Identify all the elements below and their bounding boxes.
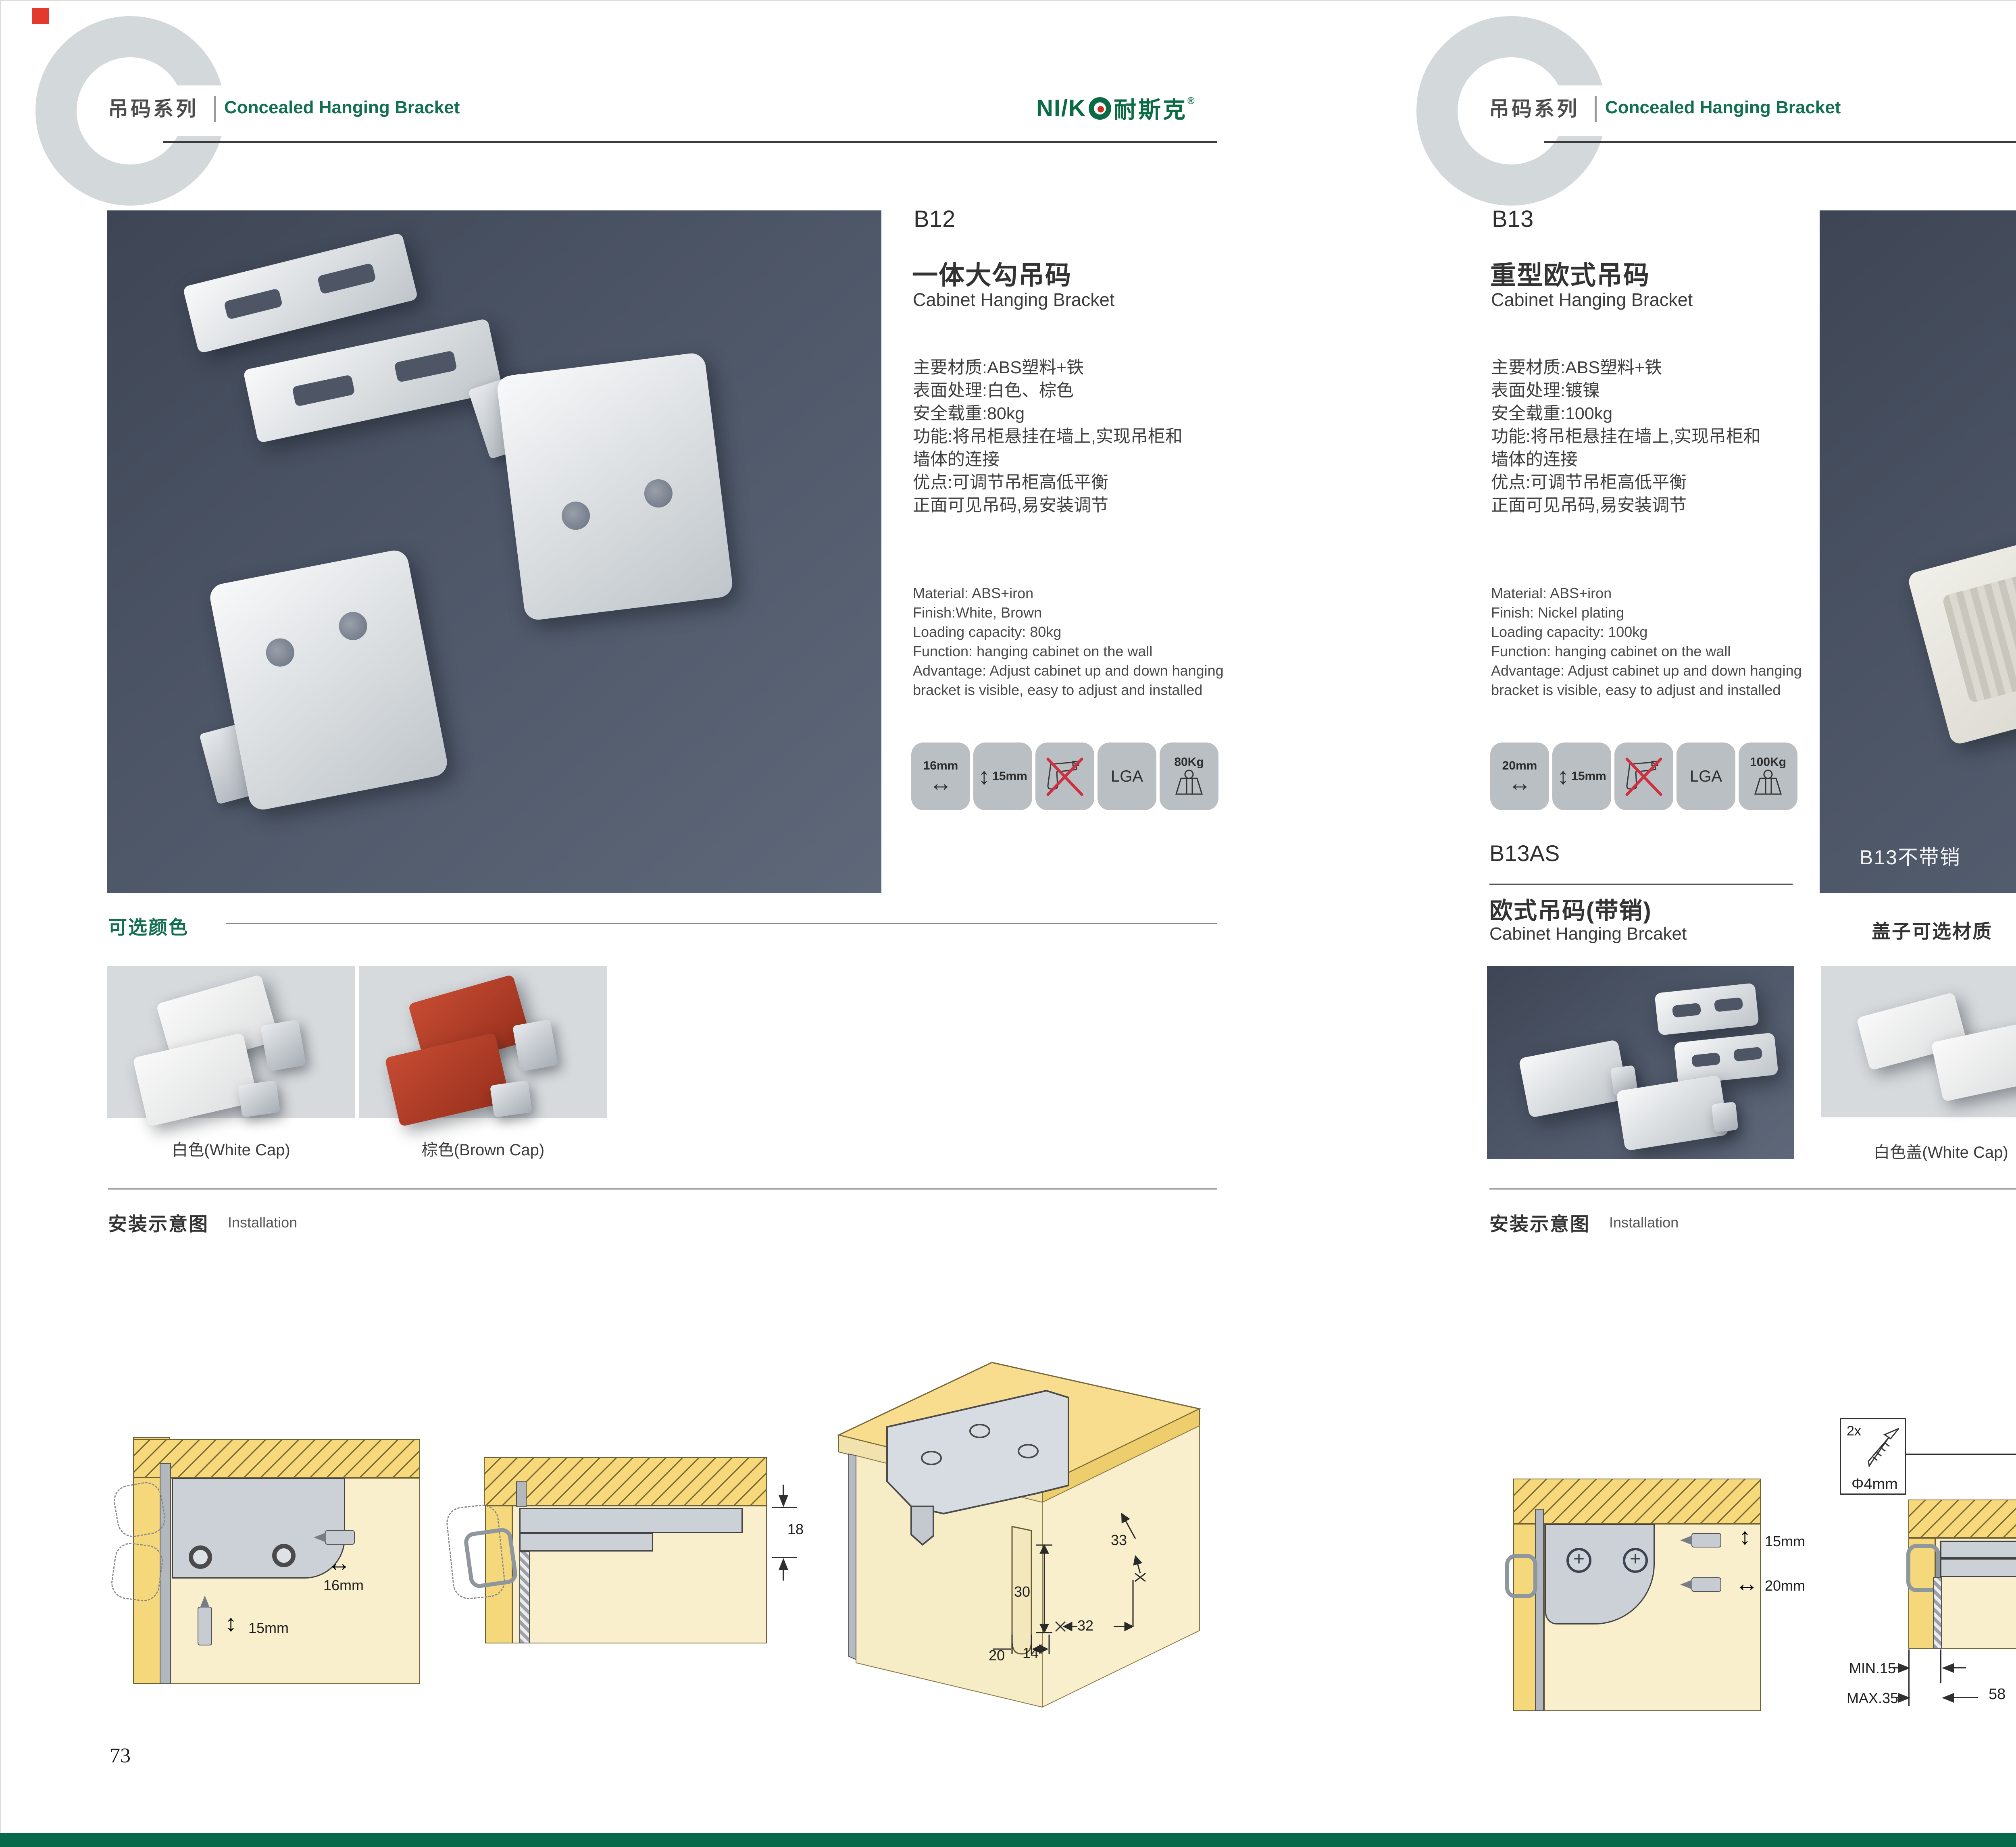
brand-logo: NI/K耐斯克® [1036, 92, 1195, 125]
arrow-right-icon [1898, 1663, 1910, 1673]
product-specs-cn: 主要材质:ABS塑料+铁 表面处理:白色、棕色 安全载重:80kg 功能:将吊柜… [913, 356, 1183, 517]
spec-line: 正面可见吊码,易安装调节 [913, 494, 1183, 517]
rail-slot [224, 288, 283, 320]
load-icon: 80Kg [1160, 743, 1218, 810]
rail-slot [1672, 1003, 1702, 1018]
screw-bit [198, 1607, 212, 1645]
dim-line [1954, 1697, 1978, 1698]
catalog-spread: 吊码系列 Concealed Hanging Bracket NI/K耐斯克® … [0, 0, 2016, 1847]
product-name-cn: 一体大勾吊码 [912, 255, 1072, 292]
dim-label: 20mm [1765, 1577, 1805, 1594]
sub-product-name-en: Cabinet Hanging Brcaket [1489, 924, 1687, 944]
bracket-hole [643, 478, 674, 509]
installation-title-en: Installation [1609, 1214, 1679, 1231]
installation-title-cn: 安装示意图 [108, 1208, 209, 1236]
screw-head [1623, 1548, 1648, 1573]
spec-line: 优点:可调节吊柜高低平衡 [1491, 471, 1761, 494]
rail-slot [1733, 1047, 1763, 1062]
spec-line: bracket is visible, easy to adjust and i… [1491, 680, 1802, 700]
leader-line [1906, 1454, 2016, 1455]
arrow-left-icon [1942, 1663, 1954, 1673]
h-arrow-icon [327, 1553, 351, 1574]
b12-bracket-render [496, 352, 734, 622]
b12-rail-render [183, 233, 418, 354]
hook-outline-dashed [109, 1541, 165, 1603]
dim-label: 32 [1077, 1617, 1093, 1634]
product-name-en: Cabinet Hanging Bracket [913, 289, 1114, 310]
swatch-caption: 棕色(Brown Cap) [359, 1137, 607, 1160]
sub-product-code: B13AS [1489, 840, 1560, 866]
lga-icon: LGA [1098, 743, 1156, 810]
screw-spec-box: 2x Φ4mm [1840, 1418, 1906, 1495]
spec-line: Advantage: Adjust cabinet up and down ha… [1491, 661, 1802, 680]
dim-line [783, 1485, 784, 1496]
weight-glyph [1169, 769, 1209, 797]
drill-crossed-glyph [1624, 753, 1664, 800]
load-value: 80Kg [1174, 755, 1204, 769]
product-code: B12 [914, 206, 955, 233]
header-rule [163, 141, 1217, 143]
series-title: 吊码系列 [1489, 93, 1579, 122]
b12-product-photo [107, 210, 881, 893]
bit-tip [200, 1595, 210, 1608]
bracket-arm-section [519, 1508, 743, 1533]
load-icon: 100Kg [1739, 743, 1797, 810]
spec-line: 正面可见吊码,易安装调节 [1491, 494, 1761, 517]
white-cap-render [133, 1033, 258, 1127]
load-value: 100Kg [1750, 755, 1786, 769]
cabinet-top-section [1513, 1479, 1761, 1524]
sub-product-rule [1489, 884, 1793, 885]
product-name-cn: 重型欧式吊码 [1490, 255, 1650, 292]
cap-hook-render [238, 1080, 280, 1117]
header-rule [1544, 141, 2016, 143]
arrow-down-icon [779, 1495, 788, 1507]
logo-o-icon [1089, 97, 1111, 120]
header-divider [1595, 96, 1597, 122]
bit-tip [1680, 1580, 1692, 1589]
dim-label: 18 [787, 1521, 804, 1538]
lga-icon: LGA [1677, 743, 1735, 810]
b12-feature-icons: 16mm 15mm LGA 80Kg [911, 743, 1218, 810]
installation-title-en: Installation [228, 1214, 297, 1231]
b13-housing-render [1907, 497, 2016, 746]
screw-diameter: Φ4mm [1851, 1476, 1898, 1493]
series-title: 吊码系列 [108, 93, 198, 122]
height-value: 15mm [992, 770, 1027, 783]
dim-label: 15mm [1765, 1533, 1805, 1550]
brown-cap-render [385, 1033, 510, 1127]
rail-section-hatched [519, 1552, 530, 1643]
dim-label: MIN.15 [1849, 1660, 1896, 1677]
wall-rail [1535, 1509, 1544, 1711]
hook-render [1712, 1102, 1739, 1132]
rail-slot [292, 374, 355, 407]
b13-product-photo: B13不带销 [1820, 210, 2016, 893]
swatch-caption: 白色盖(White Cap) [1821, 1139, 2016, 1163]
b12-install-diagram-1: 16mm 15mm [129, 1427, 444, 1701]
b12-bracket-render [208, 548, 450, 812]
section-rule [1489, 1188, 2016, 1190]
white-cap-swatch [1821, 966, 2016, 1117]
v-arrow-icon [1557, 765, 1569, 788]
arrow-right-icon [1898, 1693, 1910, 1703]
spec-line: 安全载重:80kg [913, 402, 1183, 425]
bracket-hole [560, 500, 591, 531]
h-arrow-icon [1735, 1573, 1758, 1594]
spec-line: Finish: Nickel plating [1491, 603, 1802, 622]
cabinet-top-section [1908, 1500, 2016, 1538]
rail-tab [516, 1481, 527, 1507]
series-subtitle: Concealed Hanging Bracket [224, 98, 460, 118]
b13-install-diagram-1: 15mm 20mm [1510, 1473, 1816, 1715]
bit-tip [314, 1533, 326, 1542]
dim-label: 33 [1111, 1532, 1127, 1549]
screw-bit [325, 1530, 355, 1545]
colors-section-title: 可选颜色 [108, 912, 189, 940]
housing-ridges [1942, 546, 2016, 703]
height-value: 15mm [1571, 770, 1606, 783]
b12-rail-render [243, 318, 503, 443]
weight-glyph [1748, 769, 1788, 797]
dim-label: 15mm [248, 1620, 289, 1637]
cabinet-top-section [133, 1439, 420, 1478]
header-divider [214, 96, 216, 122]
screw-head [1566, 1548, 1591, 1573]
width-icon: 20mm [1490, 743, 1549, 810]
b13as-product-photo [1487, 966, 1794, 1159]
installation-title-cn: 安装示意图 [1489, 1208, 1590, 1236]
screw-bit [1691, 1577, 1721, 1592]
corner-red-mark [32, 8, 49, 24]
spec-line: Function: hanging cabinet on the wall [1491, 642, 1802, 661]
sub-product-name-cn: 欧式吊码(带销) [1489, 892, 1652, 926]
product-specs-cn: 主要材质:ABS塑料+铁 表面处理:镀镍 安全载重:100kg 功能:将吊柜悬挂… [1491, 356, 1761, 517]
series-subtitle: Concealed Hanging Bracket [1605, 98, 1841, 118]
bracket-hole-ring [189, 1545, 212, 1569]
screw-bit [1691, 1533, 1721, 1547]
section-rule [108, 1188, 1217, 1190]
spec-line: 墙体的连接 [913, 448, 1183, 471]
v-arrow-icon [978, 765, 990, 788]
b12-install-diagram-2: 18 [478, 1441, 808, 1651]
rail-slot [1714, 997, 1743, 1012]
product-specs-en: Material: ABS+iron Finish: Nickel platin… [1491, 584, 1802, 700]
arrow-up-icon [779, 1558, 788, 1570]
spec-line: Loading capacity: 100kg [1491, 622, 1802, 642]
rail-slot [1691, 1052, 1721, 1067]
spec-line: 表面处理:镀镍 [1491, 379, 1761, 402]
height-icon: 15mm [973, 743, 1032, 810]
dim-label: 58 [1989, 1686, 2006, 1703]
product-name-en: Cabinet Hanging Bracket [1491, 289, 1693, 310]
b13-photo-label: B13不带销 [1860, 841, 1961, 870]
spec-line: 功能:将吊柜悬挂在墙上,实现吊柜和 [1491, 425, 1761, 448]
dim-label: 20 [989, 1647, 1005, 1664]
bracket-hole-ring [272, 1544, 296, 1567]
page-number: 73 [110, 1744, 131, 1768]
rail-slot [394, 350, 457, 383]
swatch-caption: 白色(White Cap) [107, 1137, 355, 1160]
bracket-bar-section [1940, 1541, 2016, 1558]
rail-section-hatched [1933, 1577, 1942, 1649]
rail-slot [317, 263, 376, 295]
h-arrow-icon [1508, 773, 1531, 794]
dim-line [1954, 1667, 1966, 1668]
drill-crossed-glyph [1045, 753, 1085, 800]
caps-section-title: 盖子可选材质 [1872, 916, 1993, 944]
arrow-left-icon [1942, 1693, 1954, 1703]
no-drill-icon [1035, 743, 1094, 810]
dim-label: 16mm [323, 1577, 364, 1594]
spec-line: 功能:将吊柜悬挂在墙上,实现吊柜和 [913, 425, 1183, 448]
dim-label: MAX.35 [1847, 1690, 1898, 1707]
ext-line [1940, 1649, 1941, 1683]
cap-hook-render [260, 1019, 306, 1072]
spec-line: 安全载重:100kg [1491, 402, 1761, 425]
bit-tip [1680, 1535, 1692, 1545]
spec-line: Loading capacity: 80kg [913, 622, 1224, 642]
spec-line: bracket is visible, easy to adjust and i… [913, 680, 1224, 700]
white-cap-swatch [107, 966, 355, 1118]
screw-count: 2x [1847, 1423, 1861, 1439]
b13-install-diagram-2: 2x Φ4mm 18 MIN.15 MAX.35 [1835, 1411, 2016, 1709]
product-code: B13 [1492, 206, 1533, 233]
spec-line: Material: ABS+iron [1491, 584, 1802, 603]
b12-install-diagram-3 [810, 1352, 1214, 1711]
spec-line: 主要材质:ABS塑料+铁 [1491, 356, 1761, 379]
bracket-bar-section [1940, 1558, 2016, 1577]
logo-latin: NI/K [1036, 95, 1086, 122]
brown-cap-swatch [359, 966, 607, 1118]
spec-line: 墙体的连接 [1491, 448, 1761, 471]
dim-label: 30 [1014, 1583, 1030, 1600]
cap-hook-render [490, 1080, 532, 1117]
h-arrow-icon [929, 773, 952, 794]
dim-label: 14 [1023, 1645, 1039, 1662]
bracket-lip-section [519, 1533, 653, 1552]
height-icon: 15mm [1552, 743, 1611, 810]
spec-line: Function: hanging cabinet on the wall [913, 642, 1224, 661]
rail-render [1654, 983, 1759, 1036]
spec-line: 优点:可调节吊柜高低平衡 [913, 471, 1183, 494]
spec-line: 表面处理:白色、棕色 [913, 379, 1183, 402]
b13-feature-icons: 20mm 15mm LGA 100Kg [1490, 743, 1797, 810]
dim-line [783, 1569, 784, 1581]
bracket-hole [264, 636, 297, 669]
product-specs-en: Material: ABS+iron Finish:White, Brown L… [913, 584, 1224, 700]
footer-bar [0, 1833, 2016, 1847]
spec-line: Advantage: Adjust cabinet up and down ha… [913, 661, 1224, 680]
spec-line: Material: ABS+iron [913, 584, 1224, 603]
lga-label: LGA [1690, 768, 1722, 786]
spec-line: Finish:White, Brown [913, 603, 1224, 622]
hook-render [463, 1527, 519, 1589]
lga-label: LGA [1111, 768, 1143, 786]
rail-render [1674, 1032, 1779, 1085]
screw-glyph [1860, 1423, 1905, 1471]
spec-line: 主要材质:ABS塑料+铁 [913, 356, 1183, 379]
logo-reg-mark: ® [1187, 96, 1195, 107]
v-arrow-icon [225, 1612, 237, 1635]
v-arrow-icon [1739, 1525, 1751, 1548]
no-drill-icon [1614, 743, 1673, 810]
logo-cjk: 耐斯克 [1114, 92, 1187, 125]
cap-hook-render [512, 1019, 558, 1072]
width-icon: 16mm [911, 743, 970, 810]
colors-rule [226, 923, 1217, 924]
hook-render [1505, 1554, 1537, 1598]
bracket-hole [337, 609, 370, 643]
